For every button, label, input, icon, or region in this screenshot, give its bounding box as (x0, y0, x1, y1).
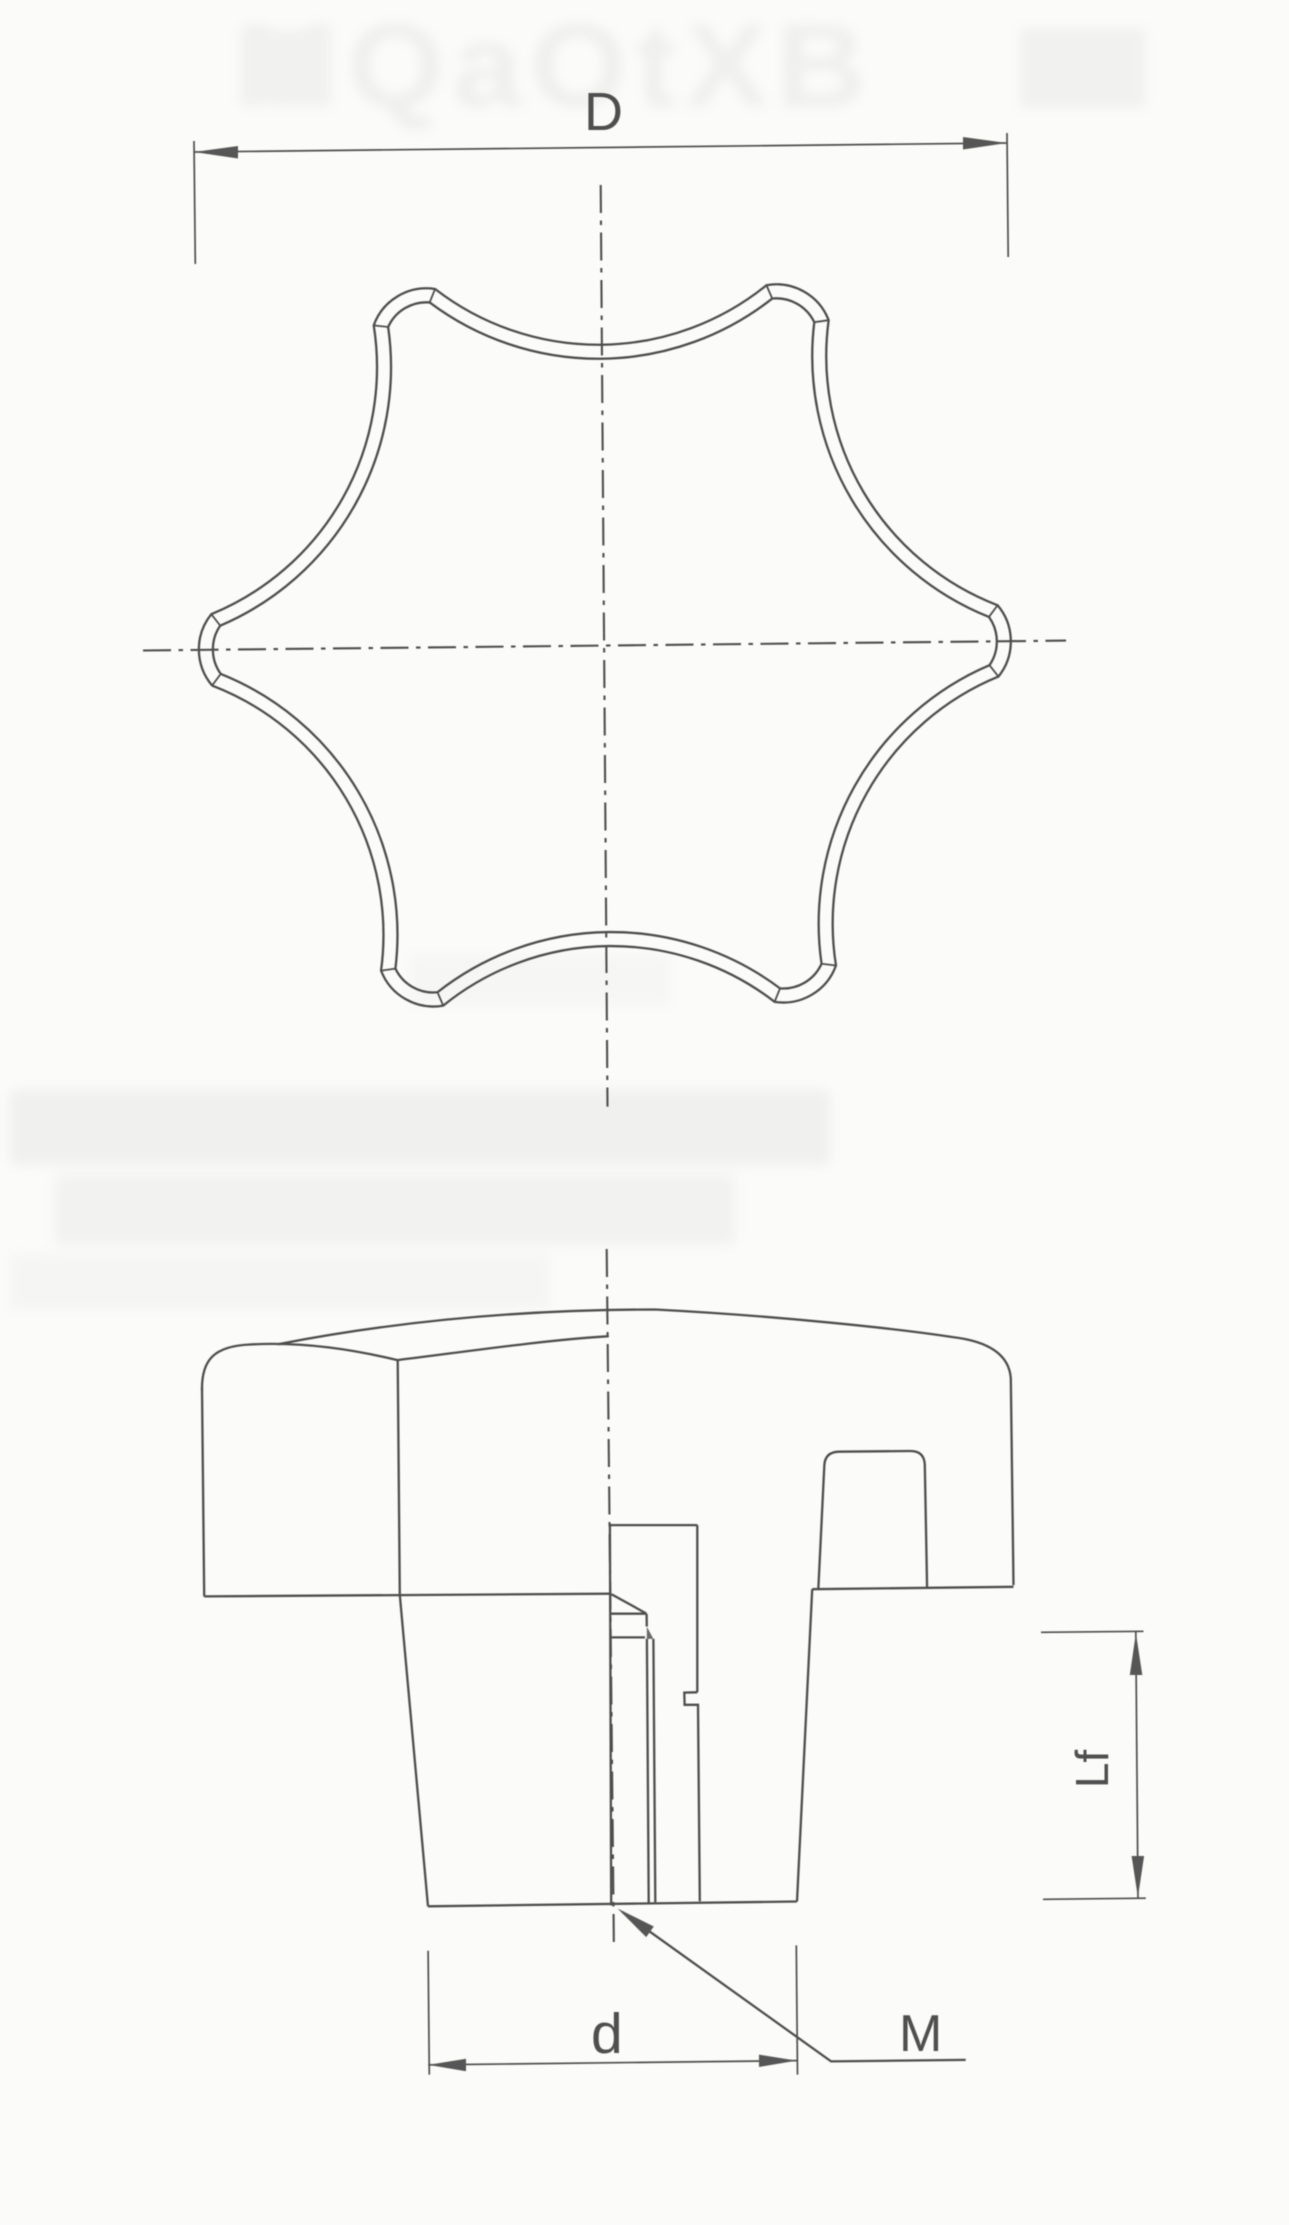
svg-text:M: M (899, 2005, 942, 2063)
svg-text:D: D (584, 82, 623, 142)
svg-text:MQaOtXB: MQaOtXB (235, 0, 874, 132)
svg-text:d: d (591, 2002, 623, 2066)
svg-text:Lf: Lf (1066, 1750, 1118, 1789)
